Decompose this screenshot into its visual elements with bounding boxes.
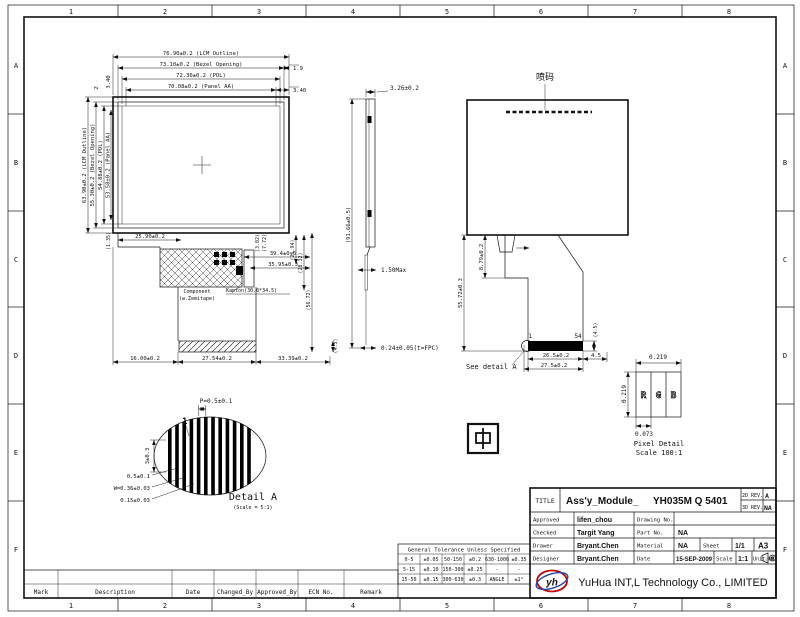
dim-top-lcm-outline: 76.90±0.2 (LCM Outline) [163,51,239,57]
subpixel-g-label: G [656,391,661,401]
pin-54-label: 54 [574,333,582,340]
grid-row-label: C [783,256,787,264]
grid-col-label: 5 [445,8,449,16]
date-value: 15-SEP-2009 [676,557,713,563]
company-logo-text: yh [545,578,558,589]
dim-tail-top: 8.79±0.2 [479,244,485,271]
front-view: 76.90±0.2 (LCM Outline) 73.10±0.2 (Bezel… [82,51,339,365]
tolerance-cell: 150-300 [442,567,463,573]
dim-left-pol: 54.88±0.2 (POL) [98,140,104,190]
drawing-sheet: 1 2 3 4 5 6 7 8 1 2 3 4 5 6 7 8 A B C D … [0,0,800,617]
rev-2d-label: 2D REV. [742,493,763,499]
checked-label: Checked [533,531,556,537]
tolerance-cell: 5-15 [403,567,415,573]
tolerance-cell: ±0.15 [423,577,438,583]
dim-pixel-height: 0.219 [621,385,628,403]
contact-fingers [168,414,251,498]
dim-right-4: (4.5) [333,338,339,353]
subpixel-r-label: R [641,391,647,401]
grid-row-label: A [14,62,19,70]
revision-header-remark: Remark [360,589,382,596]
dim-bot-1: 16.00±0.2 [130,356,160,362]
dim-tape-thickness: 0.24±0.05(t=FPC) [381,345,439,352]
grid-col-label: 8 [727,8,731,16]
tolerance-cell: ANGLE [489,577,504,583]
grid-row-label: F [14,546,18,554]
back-view: 喷码 1 54 See detail A 26.5±0.2 4.5 27.5±0… [458,72,628,372]
tolerance-cell: ±0.05 [423,557,438,563]
dim-step: 25.90±0.2 [135,234,165,240]
tolerance-cell: 300-630 [442,577,463,583]
subpixel-b-label: B [671,391,677,401]
tolerance-cell: 630-1000 [485,557,509,563]
tolerance-cell: ±0.3 [469,577,481,583]
dim-step-v: (1.35) [106,232,112,250]
dim-pixel-width: 0.219 [649,354,667,361]
dim-contacts-width: 26.5±0.2 [543,353,570,359]
checked-value: Targit Yang [577,530,614,537]
dim-subpixel-width: 0.073 [635,431,653,438]
title-label: TITLE [535,497,555,505]
drawer-label: Drawer [533,544,554,550]
pixel-detail-scale: Scale 100:1 [636,449,682,457]
grid-row-label: E [783,449,787,457]
cog-component-area [160,249,242,287]
dim-top-right-gap: 1.9 [293,66,303,72]
dim-top-panel-aa: 70.08±0.2 (Panel AA) [168,84,234,90]
pin-1-label: 1 [528,333,532,340]
company-logo: yh [534,569,570,593]
dim-fpc-thickness: 1.50Max [381,267,407,274]
dim-top-right-gap2: 3.40 [293,88,306,94]
tolerance-table: General Tolerance Unless Specified 0-5 ±… [398,544,530,584]
tolerance-cell: ±1° [514,577,523,583]
rev-2d-value: A [765,492,769,500]
dim-bot-2: 27.54±0.2 [202,356,232,362]
material-value: NA [678,543,688,550]
revision-header-approved-by: Approved_By [257,589,297,596]
sheet-value: 1/1 [735,543,745,550]
dim-right-3: (56.72) [306,289,312,310]
revision-header-mark: Mark [34,589,49,596]
grid-col-label: 5 [445,602,449,610]
detail-a-scale: (Scale = 5:1) [233,505,272,511]
dim-left-panel-aa: 53.58±0.2 (Panel AA) [106,132,112,198]
cad-drawing: 1 2 3 4 5 6 7 8 1 2 3 4 5 6 7 8 A B C D … [0,0,800,617]
dim-left-bezel-opening: 55.30±0.2 (Bezel Opening) [90,124,96,207]
grid-col-label: 4 [351,8,355,16]
tolerance-title: General Tolerance Unless Specified [408,548,521,554]
tolerance-cell: ±0.25 [467,567,482,573]
label-kapton: Kapton(30.0*34.5) [226,288,277,294]
connector-outline [244,250,254,287]
side-view: 3.26±0.2 (91.66±0.5) 1.50Max 0.24±0.05(t… [346,85,439,352]
grid-col-label: 6 [539,8,543,16]
dim-bar-height: (4.5) [593,322,599,337]
tolerance-cell: ±0.2 [469,557,481,563]
drawer-value: Bryant.Chen [577,543,619,550]
dim-finger-1: 0.5±0.1 [127,474,150,480]
part-no-value: NA [678,530,688,537]
revision-header-description: Description [95,589,135,596]
grid-col-label: 6 [539,602,543,610]
tolerance-cell: ±0.10 [423,567,438,573]
designer-label: Designer [533,557,560,563]
grid-row-label: D [783,352,787,360]
dim-left-lcm-outline: 63.90±0.2 (LCM Outline) [82,127,88,203]
grid-col-label: 2 [163,8,167,16]
rev-3d-label: 3D REV. [742,505,763,511]
dim-pitch: P=0.5±0.1 [200,398,233,405]
revision-table: Mark Description Date Changed_By Approve… [24,570,398,598]
revision-header-changed-by: Changed_By [217,589,254,596]
scale-value: 1:1 [738,556,748,563]
unit-label: Unit:mm [753,557,774,563]
tolerance-cell: - [517,567,520,573]
approved-value: lifen_chou [577,517,612,524]
see-detail-a-note: See detail A [466,363,517,371]
revision-header-ecn-no: ECN No. [308,589,333,596]
dim-finger-2: W=0.36±0.03 [114,486,150,492]
dim-tail-length: 55.72±0.3 [458,278,464,308]
center-mark: 中 [468,424,498,453]
dim-total-length: (91.66±0.5) [346,207,352,243]
grid-col-label: 2 [163,602,167,610]
tolerance-cell: 15-50 [401,577,416,583]
grid-col-label: 7 [633,8,637,16]
tolerance-cell: 50-150 [444,557,462,563]
detail-pin-1-label: 1 [182,417,187,427]
grid-col-label: 1 [69,8,73,16]
grid-col-label: 3 [257,602,261,610]
title-value-module: Ass'y_Module_ [566,496,639,507]
label-inkjet-marking: 喷码 [536,72,554,83]
dim-right-1: (26.94) [290,239,296,260]
dim-right-2: (28.32) [298,252,304,273]
paper-size: A3 [758,542,769,551]
rev-3d-value: NA [764,504,772,512]
fpc-contact-bar [528,341,583,351]
grid-col-label: 1 [69,602,73,610]
part-no-label: Part No. [637,531,664,537]
grid-row-label: A [783,62,788,70]
revision-header-date: Date [186,589,201,596]
title-block: TITLE Ass'y_Module_ YH035M Q 5401 2D REV… [530,488,776,598]
scale-label: Scale [716,557,733,563]
pixel-detail-title: Pixel Detail [634,440,685,448]
dim-cog-v2: (7.72) [262,234,268,252]
tolerance-cell: ±0.35 [511,557,526,563]
tolerance-cell: 0-5 [404,557,413,563]
dim-finger-3: 0.15±0.03 [120,498,150,504]
dim-fpc-width: 27.5±0.2 [541,363,568,369]
date-label: Date [637,557,650,563]
grid-row-label: F [783,546,787,554]
grid-row-label: D [14,352,18,360]
dim-thickness: 3.26±0.2 [390,85,419,92]
designer-value: Bryant.Chen [577,556,619,563]
grid-col-label: 8 [727,602,731,610]
grid-col-label: 3 [257,8,261,16]
center-crosshair-icon [193,156,211,174]
title-value-model: YH035M Q 5401 [653,496,728,507]
drawing-no-label: Drawing No. [637,518,673,524]
dim-left-top-gap: 2 [94,86,100,89]
detail-a: 1 P=0.5±0.1 3±0.3 0.5±0.1 W=0.36±0.03 0.… [114,398,278,511]
grid-row-label: B [783,159,787,167]
approved-label: Approved [533,518,560,524]
grid-row-label: C [14,256,18,264]
material-label: Material [637,544,664,550]
grid-col-label: 7 [633,602,637,610]
dim-side-gap: 4.5 [591,353,601,359]
grid-row-label: B [14,159,18,167]
company-name: YuHua INT,L Technology Co., LIMITED [578,577,768,589]
tail-hatch-strip [179,341,256,352]
pixel-detail: R G B 0.219 0.219 0.073 Pixel Detail Sca… [621,354,684,457]
dim-top-pol: 72.30±0.2 (POL) [176,73,226,79]
sheet-label: Sheet [703,544,720,550]
dim-finger-height: 3±0.3 [145,448,151,465]
grid-col-label: 4 [351,602,355,610]
grid-row-label: E [14,449,18,457]
label-component: Component [183,289,210,295]
dim-cog-v1: (3.02) [255,234,261,252]
dim-left-top-gap2: 3.40 [106,75,112,88]
dim-cog-w2: 35.95±0.3 [268,262,298,268]
dim-bot-3: 33.39±0.2 [278,356,308,362]
detail-a-title: Detail A [229,492,277,503]
dim-top-bezel-opening: 73.10±0.2 (Bezel Opening) [160,62,243,68]
label-component-2: (w.Zemitape) [179,296,215,302]
tolerance-cell: - [495,567,498,573]
